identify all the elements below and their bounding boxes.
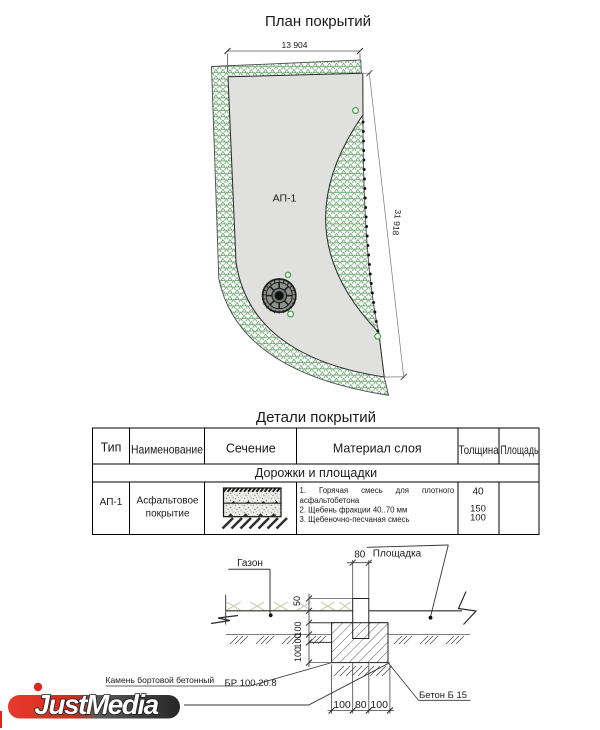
svg-text:Наименование: Наименование xyxy=(131,443,203,457)
svg-text:Площадь: Площадь xyxy=(501,443,539,457)
svg-text:JustMedia: JustMedia xyxy=(34,689,158,720)
svg-text:АП-1: АП-1 xyxy=(273,193,297,205)
svg-text:Камень бортовой бетонный: Камень бортовой бетонный xyxy=(106,675,215,685)
svg-text:100: 100 xyxy=(293,647,303,662)
svg-text:100: 100 xyxy=(333,699,351,711)
svg-text:Бетон Б 15: Бетон Б 15 xyxy=(419,690,467,701)
svg-text:Дорожки и площадки: Дорожки и площадки xyxy=(255,466,377,480)
svg-text:100: 100 xyxy=(293,633,303,648)
svg-text:Материал слоя: Материал слоя xyxy=(333,442,422,456)
svg-text:БР 100.20.8: БР 100.20.8 xyxy=(225,678,277,689)
svg-text:50: 50 xyxy=(292,596,302,606)
svg-text:13 904: 13 904 xyxy=(282,40,308,50)
svg-text:Сечение: Сечение xyxy=(226,442,276,456)
svg-text:АП-1: АП-1 xyxy=(100,497,123,508)
svg-text:Тип: Тип xyxy=(101,441,122,455)
svg-text:80: 80 xyxy=(354,550,366,561)
svg-text:1. Горячая смесь: 1. Горячая смесь для плотного xyxy=(300,486,455,495)
svg-text:Площадка: Площадка xyxy=(373,549,422,560)
svg-text:Детали покрытий: Детали покрытий xyxy=(256,409,376,426)
svg-text:100: 100 xyxy=(470,513,486,524)
svg-text:40: 40 xyxy=(472,487,484,498)
svg-text:80: 80 xyxy=(355,699,367,711)
svg-text:покрытие: покрытие xyxy=(146,509,190,520)
svg-text:3. Щебеночно-песчаная смесь: 3. Щебеночно-песчаная смесь xyxy=(300,515,410,524)
svg-text:100: 100 xyxy=(370,699,388,711)
svg-text:асфальтобетона: асфальтобетона xyxy=(300,496,360,505)
svg-text:План покрытий: План покрытий xyxy=(265,13,371,30)
svg-text:Газон: Газон xyxy=(237,558,263,569)
svg-text:Асфальтовое: Асфальтовое xyxy=(137,495,200,507)
svg-text:31 918: 31 918 xyxy=(391,209,404,236)
svg-text:Толщина: Толщина xyxy=(459,443,499,457)
svg-text:2. Щебень фракции 40..70 мм: 2. Щебень фракции 40..70 мм xyxy=(300,506,408,515)
